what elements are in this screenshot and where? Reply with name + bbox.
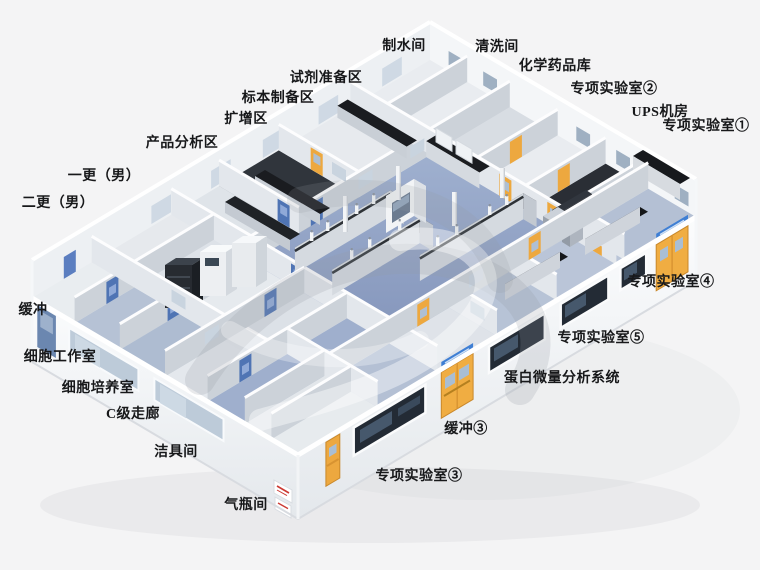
fridge xyxy=(200,245,237,296)
fridge xyxy=(232,236,267,287)
lab-floorplan-scene: 制水间 清洗间 化学药品库 专项实验室② UPS机房 专项实验室① 试剂准备区 … xyxy=(0,0,760,570)
isometric-building-render xyxy=(0,0,760,570)
yellow-door xyxy=(326,434,340,486)
service-column xyxy=(500,168,505,198)
